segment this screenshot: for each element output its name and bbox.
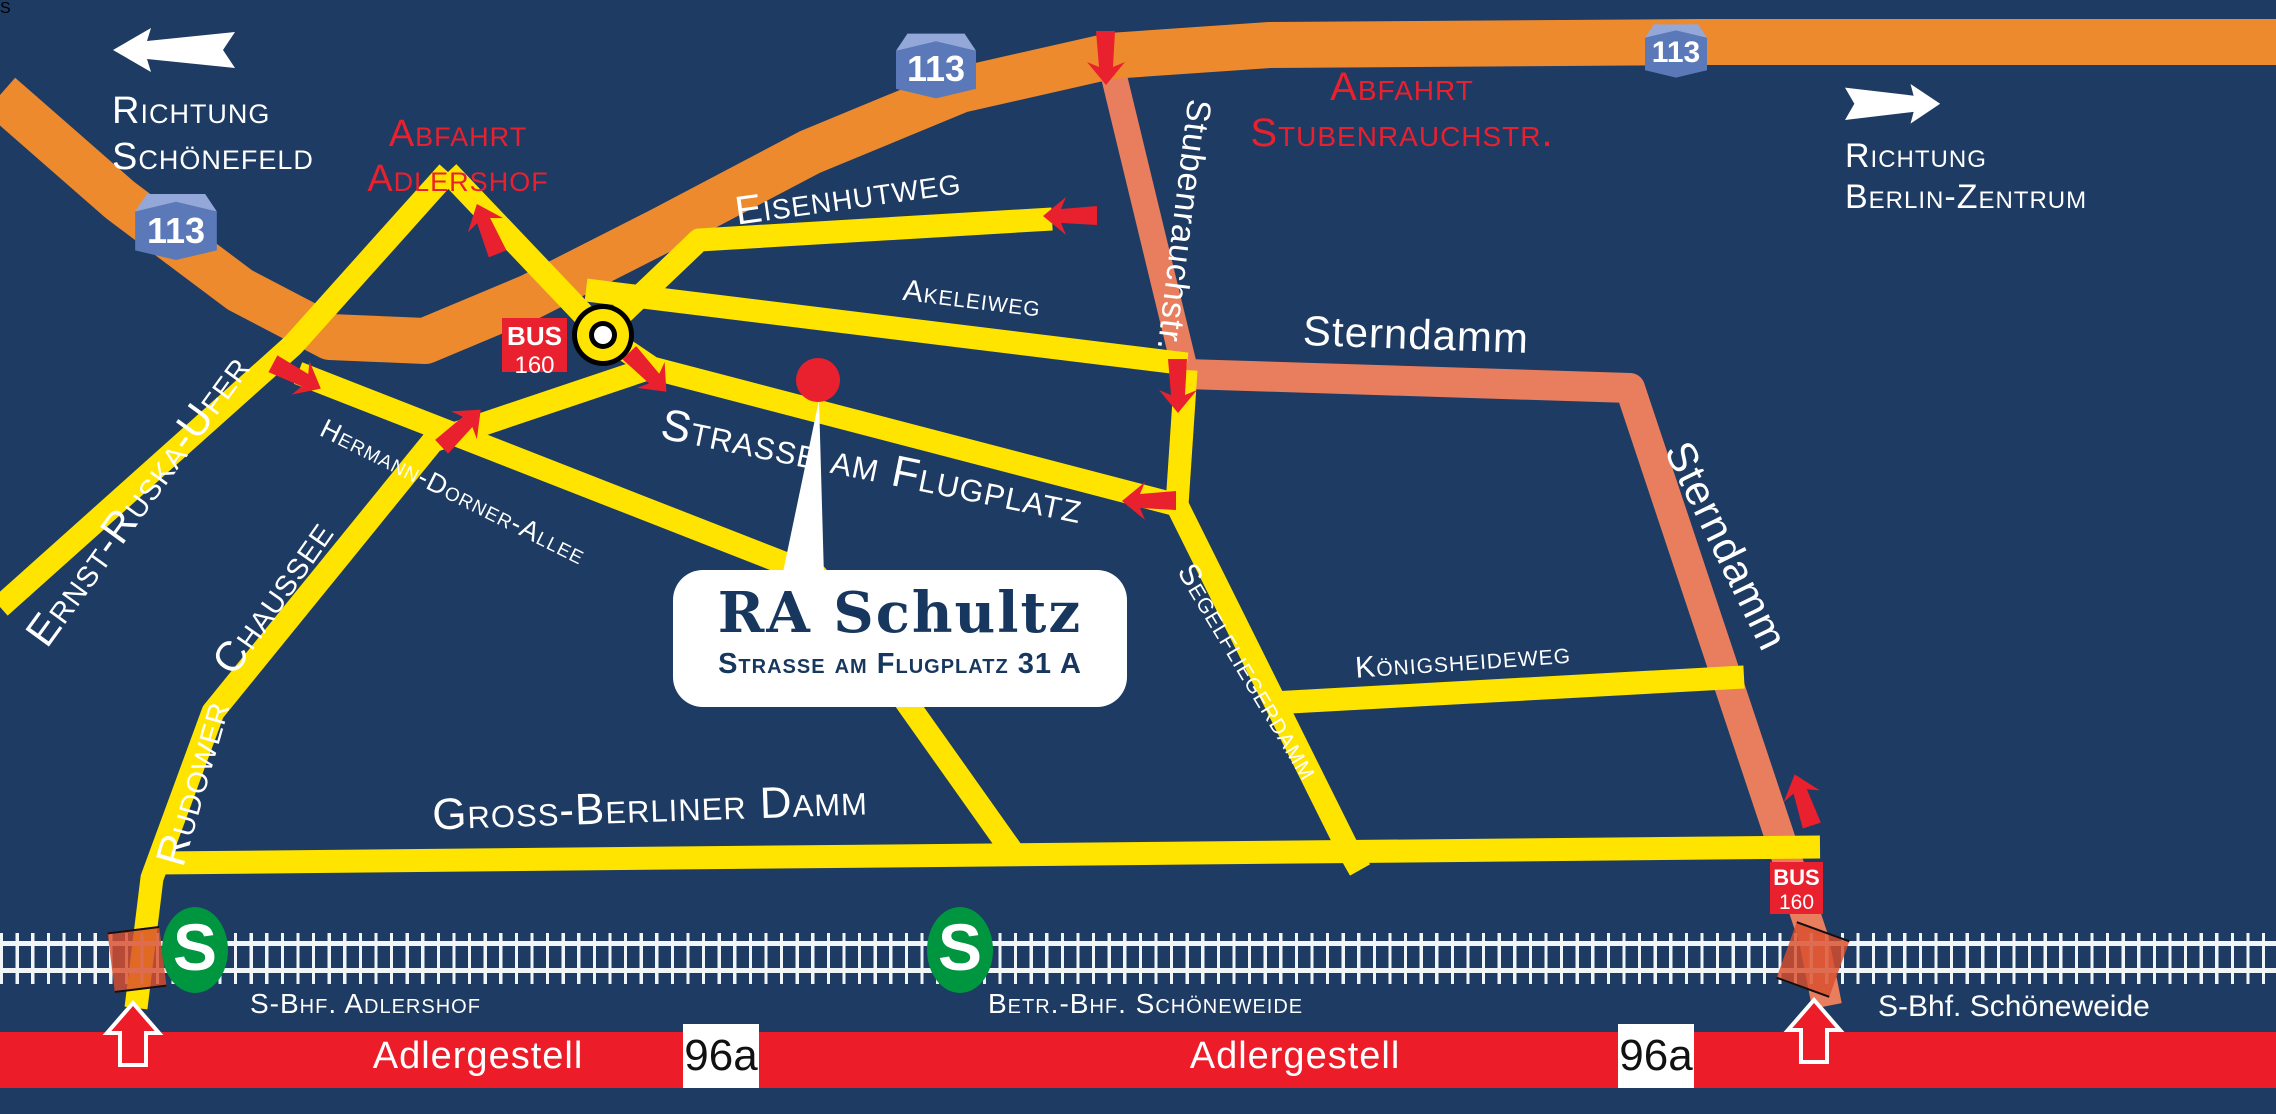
turn-arrow-icon <box>1777 768 1830 831</box>
office-address: Strasse am Flugplatz 31 A <box>673 648 1127 681</box>
entry-arrow-icon <box>1788 1000 1840 1062</box>
route-arrows <box>264 31 1829 832</box>
office-callout: RA Schultz Strasse am Flugplatz 31 A <box>673 570 1127 707</box>
turn-arrow-icon <box>1043 197 1097 235</box>
adlergestell-entry-arrows <box>107 1000 1840 1065</box>
direction-arrow-left-icon <box>113 28 235 72</box>
office-name: RA Schultz <box>673 580 1127 646</box>
office-location-dot <box>796 358 840 402</box>
turn-arrow-icon <box>1122 482 1176 520</box>
direction-arrow-right-icon <box>1845 84 1940 124</box>
turn-arrow-icon <box>264 347 330 406</box>
turn-arrow-icon <box>1159 359 1197 413</box>
arrow-overlay <box>0 0 2276 1114</box>
map-canvas: Adlergestell Adlergestell 96a 96a S S <box>0 0 2276 1114</box>
turn-arrow-icon <box>459 197 514 261</box>
entry-arrow-icon <box>107 1003 159 1065</box>
turn-arrow-icon <box>616 339 681 404</box>
turn-arrow-icon <box>1087 31 1125 85</box>
turn-arrow-icon <box>428 396 493 461</box>
callout-tail <box>782 400 824 577</box>
